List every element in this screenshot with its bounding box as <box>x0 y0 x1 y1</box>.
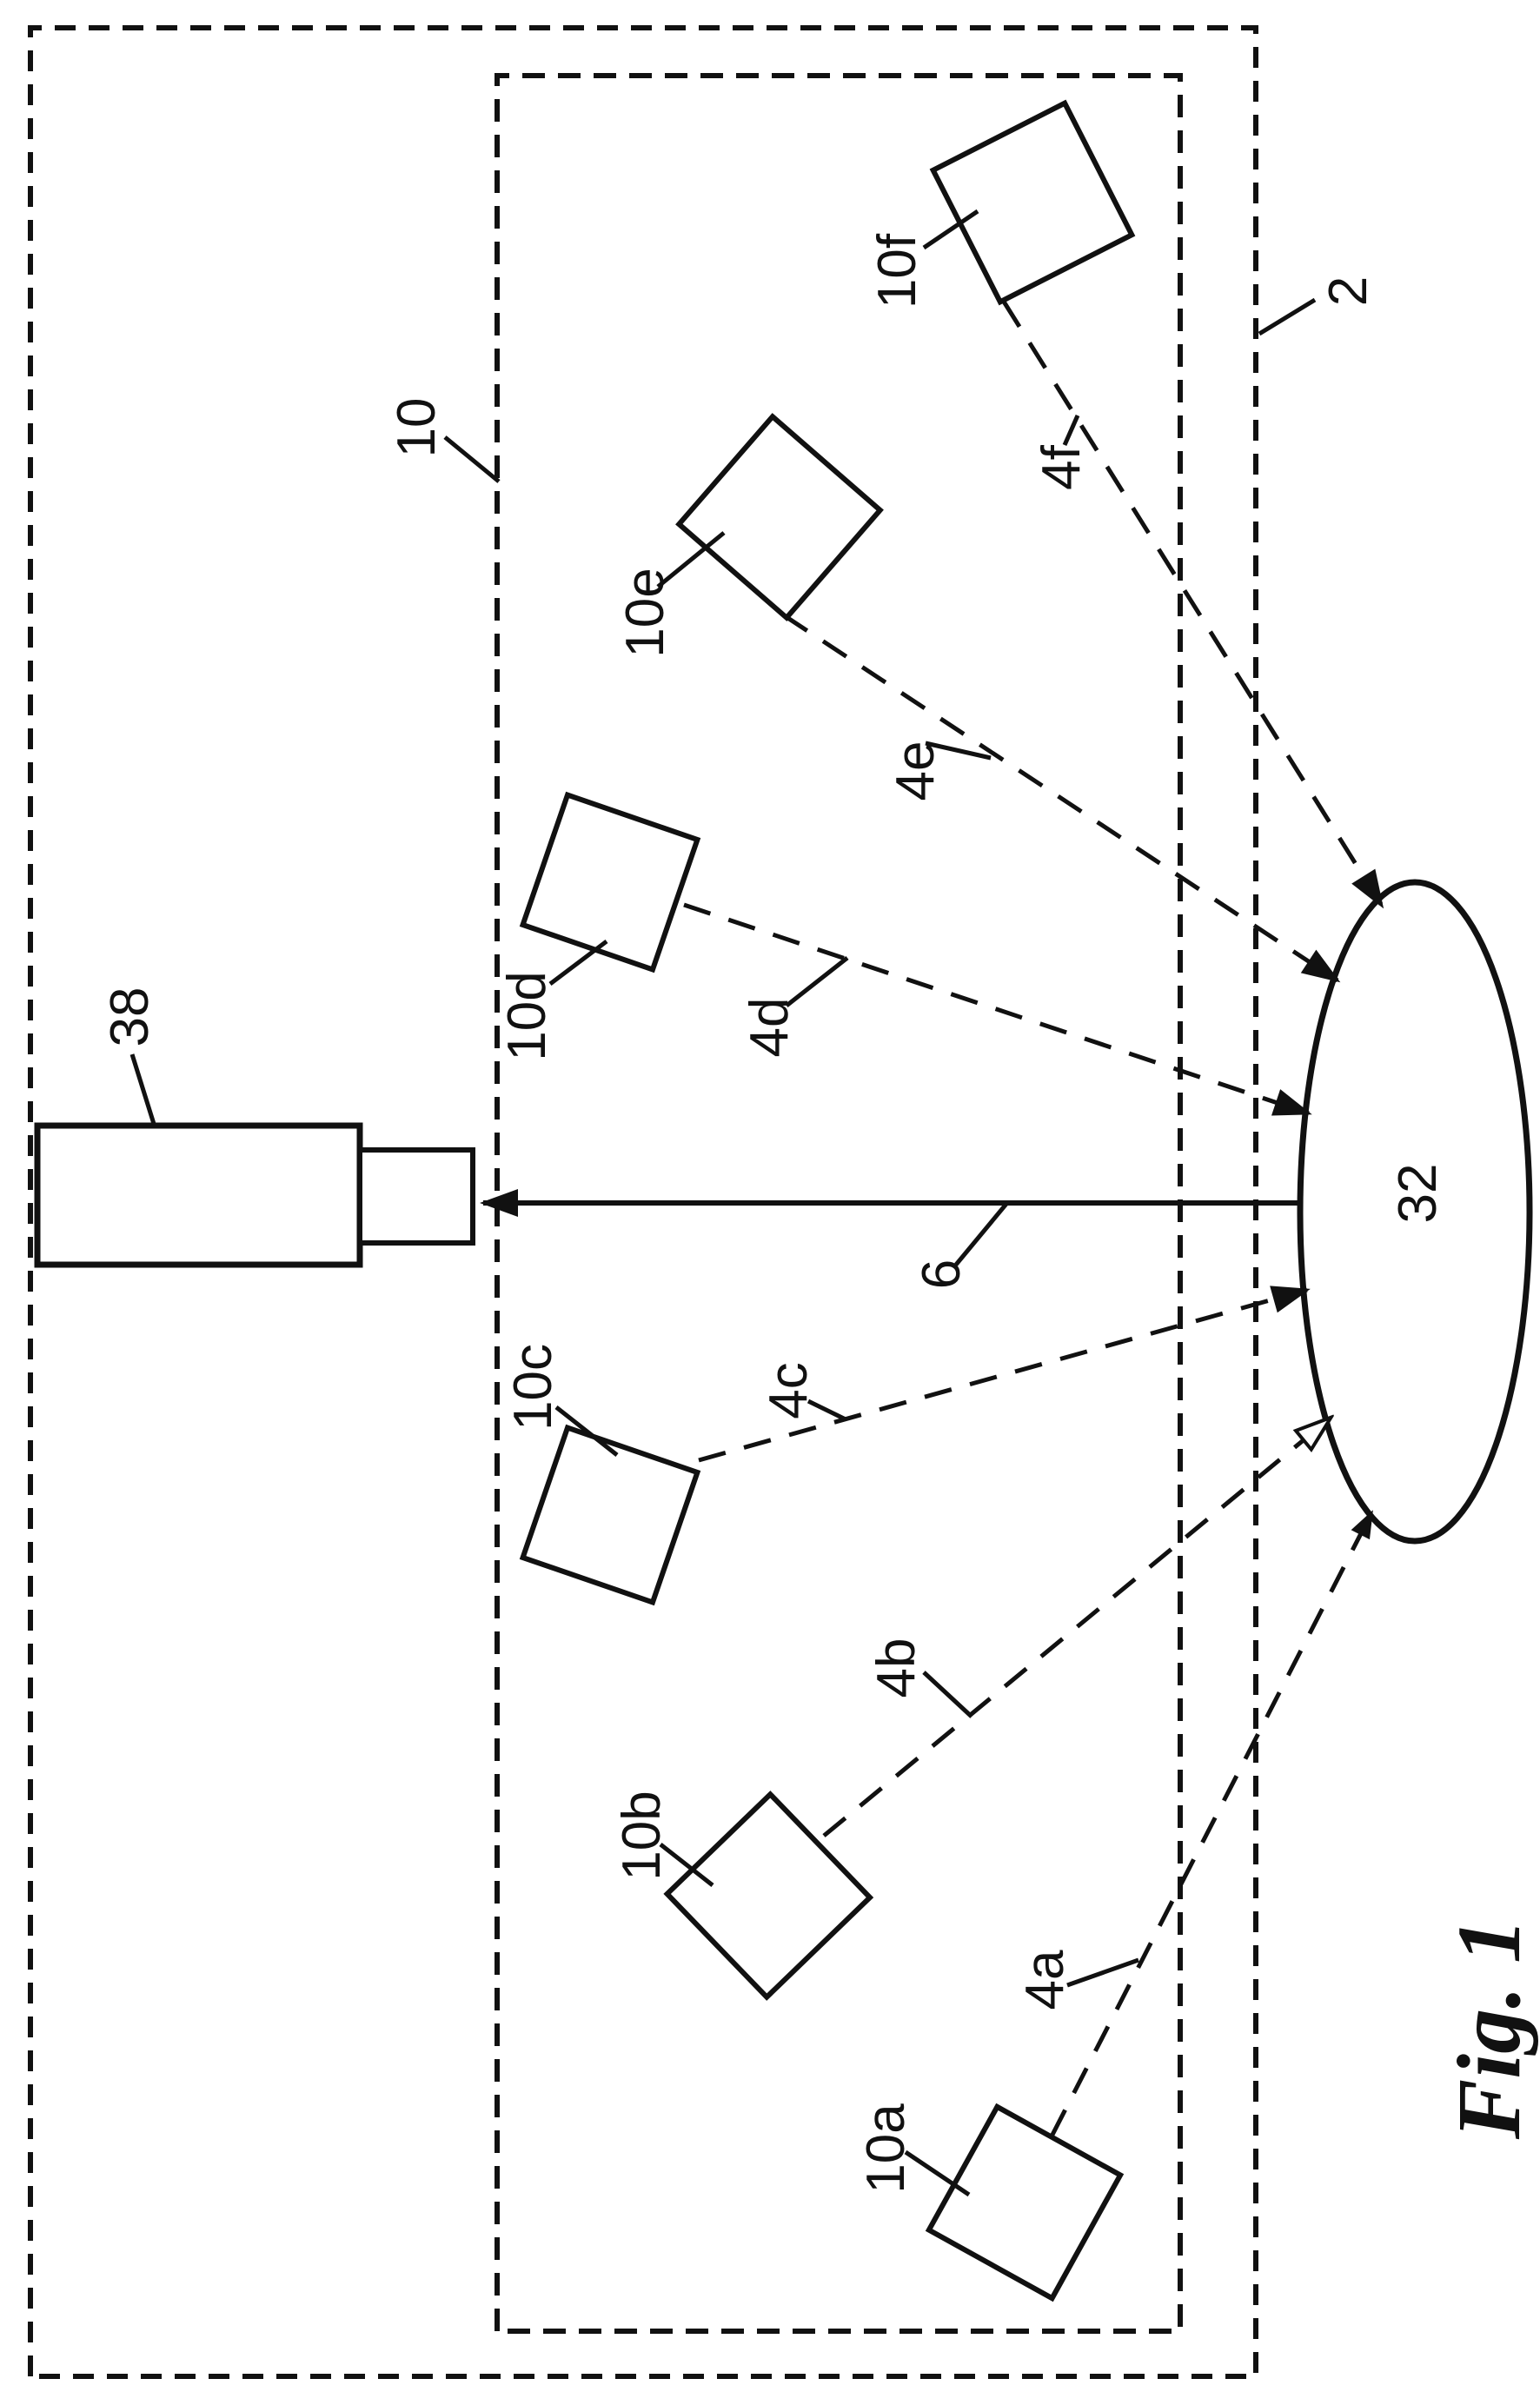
figure-canvas: 10a 10b 10c 10d 10e 10f 4a 4b 4c 4d 4e 4… <box>0 0 1540 2392</box>
figure-rotated-stage: 10a 10b 10c 10d 10e 10f 4a 4b 4c 4d 4e 4… <box>0 0 1540 2392</box>
label-10e: 10e <box>615 568 675 657</box>
device-38 <box>37 1126 473 1265</box>
label-4f: 4f <box>1032 444 1092 489</box>
label-10f: 10f <box>867 233 927 309</box>
node-square-10e <box>679 416 880 617</box>
label-4e: 4e <box>886 741 946 801</box>
label-10c: 10c <box>503 1344 563 1431</box>
label-2-outer-boundary: 2 <box>1318 276 1378 306</box>
label-10d: 10d <box>497 971 557 1060</box>
leader-4a <box>1067 1960 1138 1985</box>
node-square-10c <box>523 1428 698 1603</box>
label-4c: 4c <box>759 1362 819 1419</box>
label-38-device: 38 <box>100 987 160 1047</box>
device-38-lens <box>360 1150 473 1243</box>
node-square-10d <box>523 795 698 970</box>
patent-figure-page: 10a 10b 10c 10d 10e 10f 4a 4b 4c 4d 4e 4… <box>0 0 1540 2392</box>
label-4a: 4a <box>1015 1950 1075 2010</box>
label-6-link: 6 <box>912 1259 972 1289</box>
leader-6 <box>956 1204 1006 1265</box>
label-32-ellipse: 32 <box>1388 1164 1448 1224</box>
label-10-inner-boundary: 10 <box>387 398 447 458</box>
node-square-10a <box>929 2107 1120 2298</box>
label-10b: 10b <box>612 1791 672 1880</box>
leader-2 <box>1259 300 1315 334</box>
leader-38 <box>132 1054 154 1124</box>
arrow-4a <box>1052 1512 1372 2135</box>
device-38-body <box>37 1126 360 1265</box>
leader-10d <box>550 941 607 984</box>
figure-caption: Fig. 1 <box>1439 1918 1539 2140</box>
label-4d: 4d <box>740 998 800 1058</box>
label-10a: 10a <box>856 2103 916 2194</box>
arrow-4f <box>1004 302 1382 906</box>
leader-10 <box>445 437 499 482</box>
leader-4b <box>924 1672 972 1717</box>
label-4b: 4b <box>866 1638 926 1698</box>
node-square-10f <box>933 103 1132 302</box>
leader-4f <box>1065 415 1078 445</box>
